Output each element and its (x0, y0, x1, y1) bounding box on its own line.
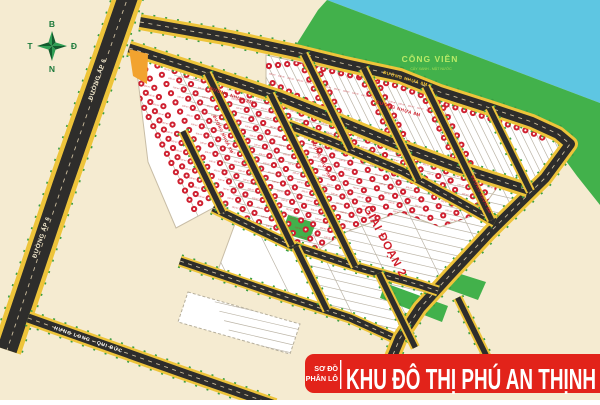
svg-text:Đ: Đ (71, 41, 77, 51)
svg-text:PHÂN LÔ: PHÂN LÔ (306, 374, 339, 383)
svg-text:B: B (49, 19, 55, 29)
svg-text:N: N (49, 64, 55, 74)
svg-text:SƠ ĐỒ: SƠ ĐỒ (314, 363, 338, 373)
svg-text:CÔNG VIÊN: CÔNG VIÊN (402, 53, 459, 64)
svg-text:KHU ĐÔ THỊ PHÚ AN THỊNH: KHU ĐÔ THỊ PHÚ AN THỊNH (346, 362, 596, 396)
svg-text:T: T (27, 41, 33, 51)
svg-text:CÂY XANH - MẶT NƯỚC: CÂY XANH - MẶT NƯỚC (410, 66, 452, 71)
